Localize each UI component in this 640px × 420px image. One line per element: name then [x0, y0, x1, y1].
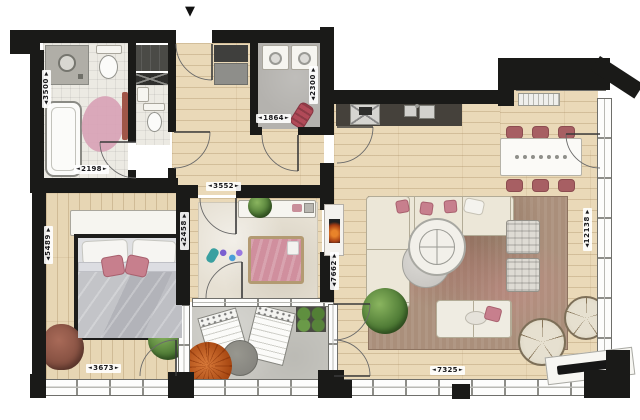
- entry-cabinet: [214, 63, 248, 85]
- faucet: [415, 104, 419, 108]
- living-plant: [362, 288, 408, 334]
- dim-apartment-height: ▲ 12138 ▼: [583, 208, 592, 251]
- wall: [584, 370, 612, 398]
- dryer-door: [298, 52, 311, 65]
- wall: [32, 190, 46, 378]
- wall: [320, 105, 334, 127]
- planter-box: [296, 306, 326, 332]
- dim-storage-height: ▲ 2300 ▼: [309, 66, 318, 104]
- dim-bathroom-height: ▲ 3500 ▼: [42, 70, 51, 108]
- wall: [30, 374, 46, 398]
- wc-sink: [137, 87, 149, 102]
- wall: [498, 58, 514, 106]
- armchair-cube: [506, 220, 540, 254]
- dim-nursery-height: ▲ 2458 ▼: [180, 212, 189, 250]
- wc-toilet-tank: [143, 103, 165, 111]
- cooktop: [359, 107, 372, 115]
- toddler-bed: [248, 236, 304, 284]
- fireplace-firebox: [329, 219, 340, 243]
- wall: [498, 58, 610, 90]
- dim-living-height: ▲ 7662 ▼: [330, 252, 339, 290]
- dim-bedroom-height: ▲ 5489 ▼: [44, 226, 53, 264]
- sofa-pillow: [419, 201, 434, 216]
- dining-chair: [506, 179, 523, 192]
- wall: [250, 127, 262, 135]
- sofa-pillow: [395, 199, 410, 214]
- washing-machine: [262, 45, 289, 70]
- wall: [236, 185, 334, 198]
- dim-bathroom-width: ◄ 2198 ►: [74, 165, 109, 174]
- balcony-glass-top: [192, 298, 334, 307]
- washer-door: [269, 52, 282, 65]
- armchair-cube: [506, 258, 540, 292]
- dining-chair: [532, 179, 549, 192]
- bathtub-inner: [51, 107, 76, 171]
- entrance-arrow-icon: ▼: [185, 5, 195, 18]
- wall: [334, 90, 506, 104]
- nursery-basket: [304, 203, 314, 213]
- wall: [298, 127, 334, 135]
- bed-headboard: [70, 210, 190, 236]
- wall: [320, 27, 334, 105]
- table-centerpiece: [515, 155, 567, 159]
- balcony-window-bottom: [192, 379, 322, 396]
- dim-bedroom-width: ◄ 3673 ►: [86, 364, 121, 373]
- shower-drain: [78, 74, 83, 79]
- daybed-bench: [436, 300, 512, 338]
- wall: [168, 168, 176, 193]
- sofa-pillow: [443, 199, 457, 213]
- toy-blocks: [218, 248, 244, 264]
- duvet: [78, 272, 182, 338]
- accent-cushion: [100, 254, 125, 278]
- coffee-table-tray: [419, 229, 455, 265]
- bedroom-window: [44, 379, 172, 396]
- accent-cushion: [124, 254, 150, 278]
- hall-closet: [132, 45, 168, 71]
- dim-living-width: ◄ 7325 ►: [430, 366, 465, 375]
- dining-radiator: [518, 93, 560, 106]
- entry-wardrobe: [214, 45, 248, 62]
- toilet-tank: [96, 45, 122, 54]
- floor-plan: ▼ ▲ 3500 ▼ ◄ 2198 ► ◄ 1864 ► ▲ 2300 ▼ ◄ …: [0, 0, 640, 420]
- nursery-decor: [292, 204, 302, 212]
- coffee-table-large: [408, 218, 466, 276]
- wall: [168, 372, 194, 398]
- wall: [212, 30, 334, 43]
- wall: [128, 170, 136, 193]
- shower-head: [58, 54, 76, 72]
- wall: [168, 43, 176, 132]
- wall: [338, 380, 352, 398]
- dining-chair: [558, 179, 575, 192]
- toddler-pillow: [287, 241, 299, 255]
- tech-cabinet: [132, 73, 168, 85]
- dining-table: [500, 138, 582, 176]
- wall: [452, 384, 470, 399]
- kitchen-sink-2: [419, 105, 435, 119]
- wall: [10, 30, 176, 43]
- fireplace: [324, 204, 344, 256]
- shower: [45, 45, 89, 85]
- dim-storage-width: ◄ 1864 ►: [256, 114, 291, 123]
- wc-toilet-bowl: [147, 112, 162, 132]
- cooktop-hood: [350, 104, 380, 125]
- toilet-bowl: [99, 55, 118, 79]
- wall: [128, 43, 136, 142]
- living-window-right: [597, 98, 612, 356]
- wall: [43, 178, 178, 193]
- dim-nursery-width: ◄ 3552 ►: [206, 182, 241, 191]
